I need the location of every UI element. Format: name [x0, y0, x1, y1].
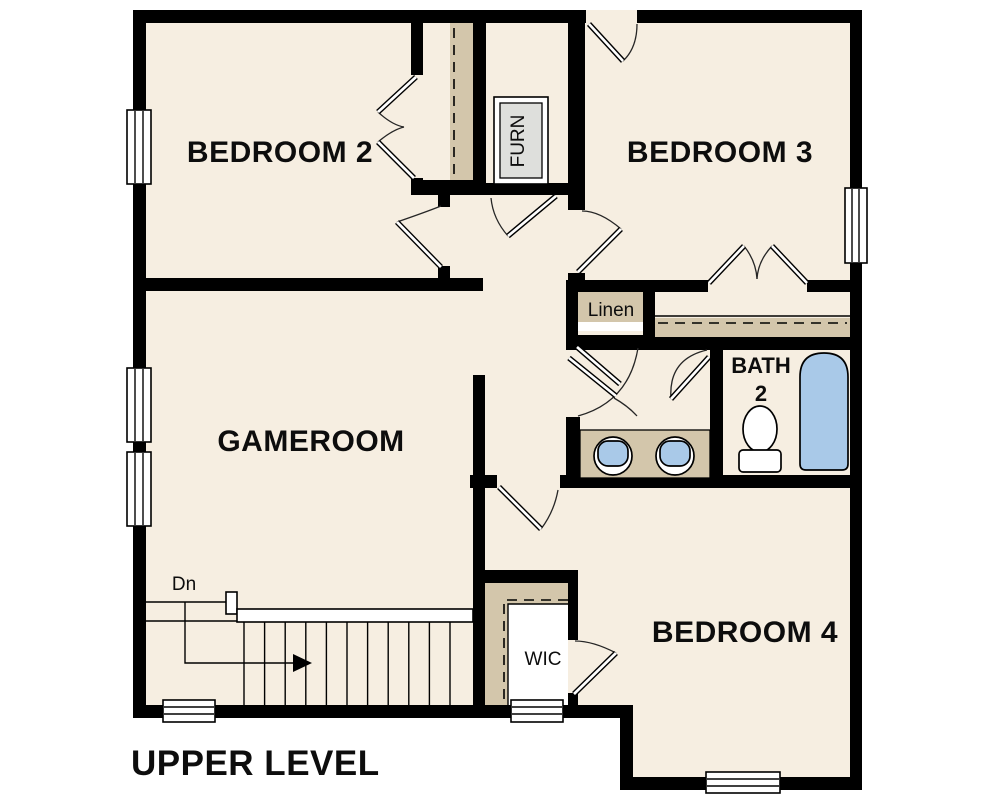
room-label-bedroom3: BEDROOM 3: [627, 136, 813, 169]
room-label-wic: WIC: [525, 649, 562, 670]
wall-segment: [133, 10, 586, 23]
window-bedroom2: [127, 110, 151, 184]
room-label-bedroom4: BEDROOM 4: [652, 616, 838, 649]
wall-segment: [566, 280, 708, 292]
window-bedroom3: [845, 188, 867, 263]
wall-segment: [438, 195, 450, 207]
window-stairwell: [163, 700, 215, 722]
bathtub: [800, 353, 848, 470]
sink-left: [594, 437, 632, 475]
room-label-gameroom: GAMEROOM: [217, 425, 404, 458]
wall-segment: [710, 348, 723, 478]
linen-shelf-edge: [578, 322, 643, 331]
wall-segment: [470, 475, 497, 488]
room-label-bath2-number: 2: [755, 381, 767, 406]
floor-plan-drawing: BEDROOM 2 BEDROOM 3 GAMEROOM BEDROOM 4 B…: [0, 0, 1000, 800]
room-label-bath2: BATH: [731, 353, 790, 378]
window-bedroom4: [706, 772, 780, 793]
stair-railing: [237, 609, 473, 622]
wall-segment: [473, 375, 485, 718]
floor-door-gap: [586, 10, 637, 20]
wall-segment: [807, 280, 862, 292]
bedroom3-closet-shelf: [655, 318, 850, 337]
wall-segment: [411, 180, 486, 195]
room-label-linen: Linen: [588, 300, 635, 321]
plan-title: UPPER LEVEL: [131, 744, 380, 783]
wall-segment: [568, 23, 585, 210]
wall-segment: [411, 23, 423, 75]
wall-segment: [850, 10, 862, 790]
wall-segment: [473, 570, 578, 583]
floor-plan-page: BEDROOM 2 BEDROOM 3 GAMEROOM BEDROOM 4 B…: [0, 0, 1000, 800]
sink-right: [656, 437, 694, 475]
wall-segment: [568, 570, 578, 640]
room-label-furnace: FURN: [508, 115, 529, 168]
window-wic: [511, 700, 563, 722]
room-label-bedroom2: BEDROOM 2: [187, 136, 373, 169]
wall-segment: [566, 417, 580, 478]
stair-newel-post: [226, 592, 237, 614]
wall-segment: [473, 23, 486, 195]
window-gameroom-lower: [127, 452, 151, 526]
wall-segment: [637, 10, 862, 23]
toilet: [739, 406, 781, 472]
wall-segment: [133, 278, 483, 291]
stairs-direction-label: Dn: [172, 574, 196, 595]
wall-segment: [643, 337, 862, 350]
window-gameroom-upper: [127, 368, 151, 442]
wall-segment: [566, 280, 578, 335]
